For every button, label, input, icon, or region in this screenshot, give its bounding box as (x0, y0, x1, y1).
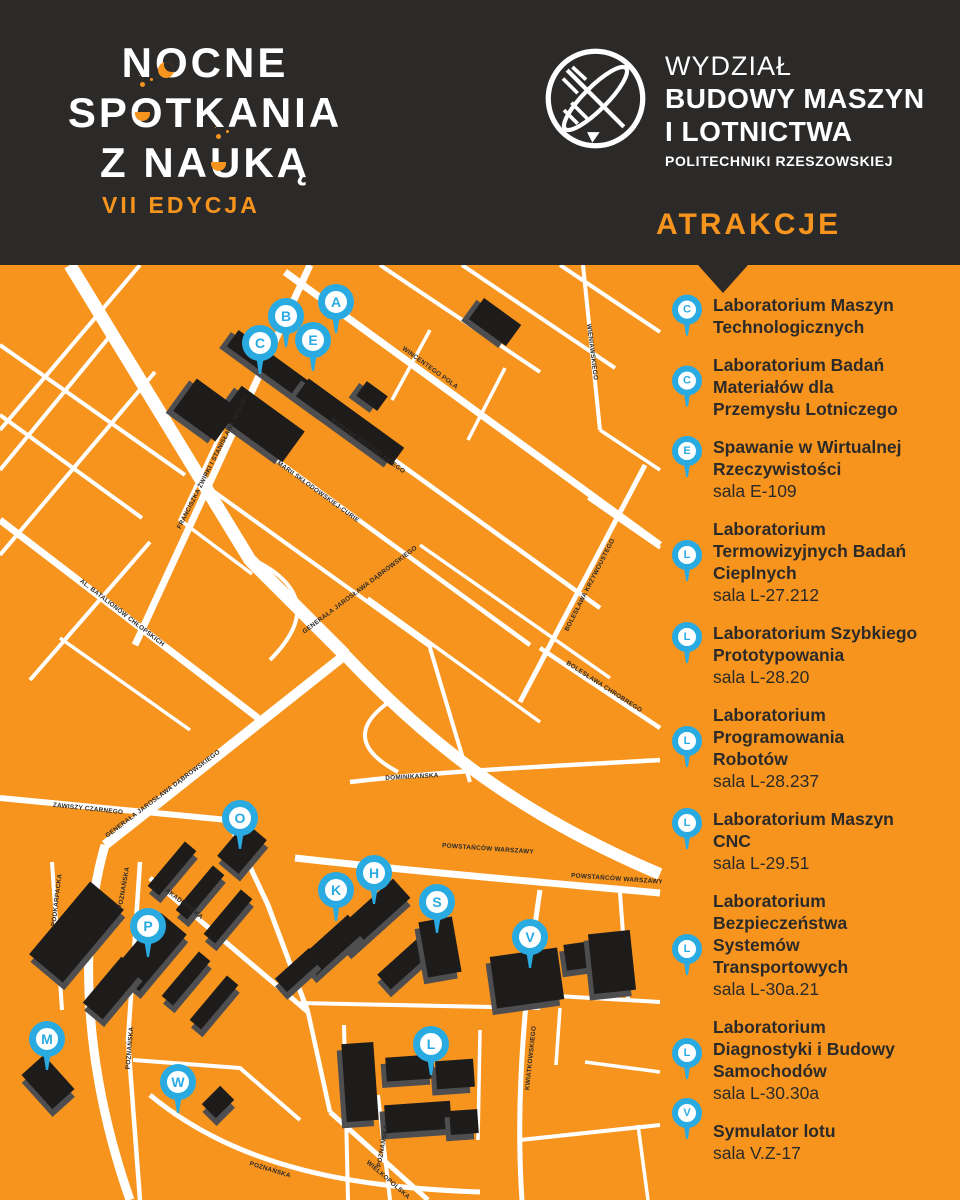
pin-letter: S (419, 884, 455, 920)
bubbles-icon (140, 82, 145, 87)
attraction-title-line: Samochodów (713, 1060, 950, 1082)
attraction-room: sala L-30a.21 (713, 978, 950, 1000)
pin-letter: V (512, 919, 548, 955)
pin-letter: L (672, 726, 702, 756)
map-pin-k[interactable]: K (318, 872, 354, 921)
pin-letter: K (318, 872, 354, 908)
road-segment (520, 465, 645, 702)
pin-letter: L (672, 934, 702, 964)
pin-letter: C (242, 325, 278, 361)
faculty-line-3: I LOTNICTWA (665, 115, 925, 148)
attraction-item: LLaboratoriumTermowizyjnych BadańCieplny… (672, 518, 950, 606)
pin-stem-icon (144, 942, 153, 957)
attraction-title: Symulator lotu (713, 1120, 950, 1142)
pin-stem-icon (683, 1126, 691, 1139)
building (449, 1109, 479, 1135)
attraction-title-line: Rzeczywistości (713, 458, 950, 480)
pin-stem-icon (236, 834, 245, 849)
attraction-title-line: Prototypowania (713, 644, 950, 666)
road-segment (0, 330, 115, 470)
attraction-title-line: Transportowych (713, 956, 950, 978)
attraction-title: LaboratoriumBezpieczeństwaSystemówTransp… (713, 890, 950, 978)
attraction-title: Laboratorium MaszynTechnologicznych (713, 294, 950, 338)
pin-letter: L (672, 622, 702, 652)
attraction-title: LaboratoriumTermowizyjnych BadańCieplnyc… (713, 518, 950, 584)
attraction-title-line: Technologicznych (713, 316, 950, 338)
pin-stem-icon (683, 754, 691, 767)
road-segment (478, 1030, 480, 1140)
attraction-title-line: Spawanie w Wirtualnej (713, 436, 950, 458)
legend-pin-v-icon: V (672, 1098, 702, 1139)
attraction-room: sala V.Z-17 (713, 1142, 950, 1164)
propeller-logo-icon (543, 46, 648, 151)
pin-letter: C (672, 366, 702, 396)
pin-stem-icon (370, 889, 379, 904)
brand-line-3: Z NAUKĄ (50, 138, 360, 188)
map-pin-m[interactable]: M (29, 1021, 65, 1070)
map-pin-v[interactable]: V (512, 919, 548, 968)
attraction-title: Laboratorium MaszynCNC (713, 808, 950, 852)
road-segment (638, 1125, 648, 1200)
attraction-item: ESpawanie w WirtualnejRzeczywistościsala… (672, 436, 950, 502)
pin-stem-icon (683, 394, 691, 407)
pin-stem-icon (526, 953, 535, 968)
pin-letter: W (160, 1064, 196, 1100)
attraction-item: LLaboratorium MaszynCNCsala L-29.51 (672, 808, 950, 874)
attraction-title: Laboratorium BadańMateriałów dlaPrzemysł… (713, 354, 950, 420)
attraction-item: LLaboratoriumProgramowaniaRobotówsala L-… (672, 704, 950, 792)
attraction-title-line: Przemysłu Lotniczego (713, 398, 950, 420)
faculty-line-4: POLITECHNIKI RZESZOWSKIEJ (665, 152, 925, 170)
pin-stem-icon (43, 1055, 52, 1070)
legend-pin-e-icon: E (672, 436, 702, 477)
attraction-title-line: Laboratorium Maszyn (713, 808, 950, 830)
pin-stem-icon (282, 332, 291, 347)
pin-letter: V (672, 1098, 702, 1128)
attraction-room: sala E-109 (713, 480, 950, 502)
building (588, 930, 636, 994)
pin-letter: L (672, 808, 702, 838)
pin-letter: C (672, 295, 702, 325)
faculty-line-1: WYDZIAŁ (665, 50, 925, 82)
faculty-line-2: BUDOWY MASZYN (665, 82, 925, 115)
legend-pin-l-icon: L (672, 934, 702, 975)
attraction-title-line: Robotów (713, 748, 950, 770)
pin-letter: O (222, 800, 258, 836)
attraction-title-line: Cieplnych (713, 562, 950, 584)
map-pin-l[interactable]: L (413, 1026, 449, 1075)
legend-pin-l-icon: L (672, 1038, 702, 1079)
building (341, 1042, 378, 1122)
attraction-title-line: Laboratorium (713, 1016, 950, 1038)
attraction-item: LLaboratorium SzybkiegoPrototypowaniasal… (672, 622, 950, 688)
moon-icon (158, 62, 174, 78)
pin-stem-icon (332, 318, 341, 333)
pin-stem-icon (683, 962, 691, 975)
attraction-title: LaboratoriumDiagnostyki i BudowySamochod… (713, 1016, 950, 1082)
road-segment (600, 430, 660, 470)
attraction-title-line: Laboratorium Badań (713, 354, 950, 376)
attraction-title: Spawanie w WirtualnejRzeczywistości (713, 436, 950, 480)
legend-pin-l-icon: L (672, 622, 702, 663)
event-logo: NOCNE SPOTKANIA Z NAUKĄ VII EDYCJA (50, 38, 360, 218)
legend-pin-c-icon: C (672, 295, 702, 336)
campus-map: WINCENTEGO POLAROMANA NIEDZIELSKIEGOMARI… (0, 265, 662, 1200)
attraction-item: CLaboratorium MaszynTechnologicznych (672, 294, 950, 338)
pin-stem-icon (256, 359, 265, 374)
attraction-room: sala L-29.51 (713, 852, 950, 874)
attraction-title-line: Programowania (713, 726, 950, 748)
bubbles-icon (216, 134, 221, 139)
pin-stem-icon (683, 464, 691, 477)
road-segment (585, 1062, 660, 1072)
attraction-title-line: Laboratorium Maszyn (713, 294, 950, 316)
pin-letter: P (130, 908, 166, 944)
pin-letter: E (295, 322, 331, 358)
attractions-list: CLaboratorium MaszynTechnologicznychCLab… (672, 294, 950, 1164)
pin-stem-icon (309, 356, 318, 371)
map-pin-w[interactable]: W (160, 1064, 196, 1113)
pin-letter: L (672, 1038, 702, 1068)
legend-pin-l-icon: L (672, 726, 702, 767)
attraction-item: VSymulator lotusala V.Z-17 (672, 1120, 950, 1164)
map-pin-o[interactable]: O (222, 800, 258, 849)
attraction-title-line: Systemów (713, 934, 950, 956)
attraction-title-line: Materiałów dla (713, 376, 950, 398)
attraction-title-line: Laboratorium (713, 518, 950, 540)
attraction-title-line: Bezpieczeństwa (713, 912, 950, 934)
attraction-title-line: Termowizyjnych Badań (713, 540, 950, 562)
attraction-item: LLaboratoriumDiagnostyki i BudowySamocho… (672, 1016, 950, 1104)
pin-stem-icon (332, 906, 341, 921)
attraction-title-line: Diagnostyki i Budowy (713, 1038, 950, 1060)
attraction-title-line: Symulator lotu (713, 1120, 950, 1142)
map-pin-h[interactable]: H (356, 855, 392, 904)
pin-letter: L (413, 1026, 449, 1062)
legend-pin-l-icon: L (672, 808, 702, 849)
legend-pin-c-icon: C (672, 366, 702, 407)
attractions-heading: ATRAKCJE (656, 208, 841, 242)
map-pin-e[interactable]: E (295, 322, 331, 371)
attraction-room: sala L-27.212 (713, 584, 950, 606)
attraction-title: LaboratoriumProgramowaniaRobotów (713, 704, 950, 770)
pin-letter: L (672, 540, 702, 570)
road-segment (308, 1012, 330, 1112)
road-segment (560, 265, 660, 332)
brand-line-2: SPOTKANIA (50, 88, 360, 138)
faculty-logo-block: WYDZIAŁ BUDOWY MASZYN I LOTNICTWA POLITE… (543, 46, 925, 170)
building (384, 1101, 452, 1134)
pin-stem-icon (683, 836, 691, 849)
pin-stem-icon (427, 1060, 436, 1075)
attraction-room: sala L-28.237 (713, 770, 950, 792)
map-pin-s[interactable]: S (419, 884, 455, 933)
attraction-room: sala L-30.30a (713, 1082, 950, 1104)
attraction-room: sala L-28.20 (713, 666, 950, 688)
attraction-item: LLaboratoriumBezpieczeństwaSystemówTrans… (672, 890, 950, 1000)
pin-stem-icon (683, 568, 691, 581)
pin-letter: M (29, 1021, 65, 1057)
faculty-name: WYDZIAŁ BUDOWY MASZYN I LOTNICTWA POLITE… (665, 46, 925, 170)
pin-letter: A (318, 284, 354, 320)
attraction-title: Laboratorium SzybkiegoPrototypowania (713, 622, 950, 666)
pin-stem-icon (174, 1098, 183, 1113)
pin-stem-icon (683, 323, 691, 336)
pointer-triangle (698, 265, 748, 293)
attraction-title-line: Laboratorium (713, 704, 950, 726)
brand-line-1: NOCNE (50, 38, 360, 88)
map-pin-p[interactable]: P (130, 908, 166, 957)
legend-pin-l-icon: L (672, 540, 702, 581)
map-pin-c[interactable]: C (242, 325, 278, 374)
pin-stem-icon (683, 650, 691, 663)
attraction-item: CLaboratorium BadańMateriałów dlaPrzemys… (672, 354, 950, 420)
attraction-title-line: CNC (713, 830, 950, 852)
pin-stem-icon (683, 1066, 691, 1079)
header-band: NOCNE SPOTKANIA Z NAUKĄ VII EDYCJA WYDZI… (0, 0, 960, 265)
edition-label: VII EDYCJA (102, 192, 360, 218)
pin-letter: H (356, 855, 392, 891)
pin-stem-icon (433, 918, 442, 933)
road-segment (556, 1008, 560, 1065)
attraction-title-line: Laboratorium (713, 890, 950, 912)
attraction-title-line: Laboratorium Szybkiego (713, 622, 950, 644)
pin-letter: E (672, 436, 702, 466)
